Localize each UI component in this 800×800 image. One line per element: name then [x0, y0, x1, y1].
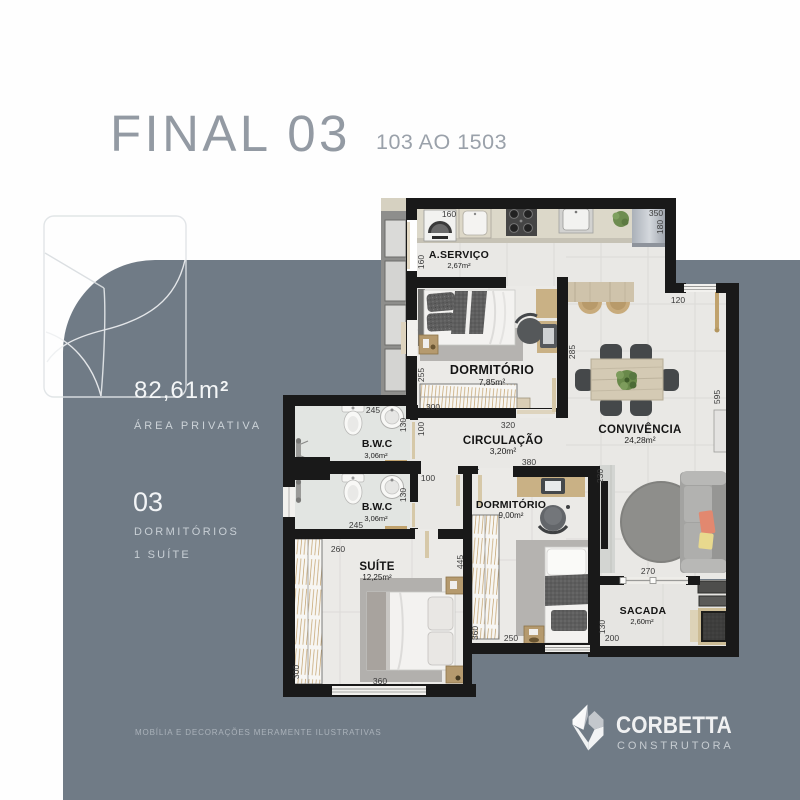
svg-text:255: 255 — [416, 368, 426, 382]
svg-text:180: 180 — [655, 220, 665, 234]
svg-text:245: 245 — [366, 405, 380, 415]
svg-text:100: 100 — [421, 473, 435, 483]
svg-text:130: 130 — [398, 488, 408, 502]
svg-text:270: 270 — [641, 566, 655, 576]
svg-text:230: 230 — [595, 469, 605, 483]
svg-text:130: 130 — [597, 620, 607, 634]
svg-text:160: 160 — [416, 255, 426, 269]
svg-text:445: 445 — [455, 555, 465, 569]
svg-text:160: 160 — [442, 209, 456, 219]
svg-text:A.SERVIÇO: A.SERVIÇO — [429, 249, 489, 261]
svg-text:12,25m²: 12,25m² — [362, 573, 392, 582]
svg-text:B.W.C: B.W.C — [362, 438, 393, 450]
svg-text:350: 350 — [649, 208, 663, 218]
svg-text:2,60m²: 2,60m² — [630, 617, 654, 626]
svg-text:SUÍTE: SUÍTE — [359, 560, 394, 573]
svg-text:SACADA: SACADA — [620, 605, 667, 617]
svg-text:B.W.C: B.W.C — [362, 501, 393, 513]
svg-text:24,28m²: 24,28m² — [624, 435, 655, 445]
svg-text:DORMITÓRIO: DORMITÓRIO — [476, 498, 546, 511]
svg-text:3,20m²: 3,20m² — [490, 446, 517, 456]
svg-text:200: 200 — [605, 633, 619, 643]
svg-text:130: 130 — [398, 418, 408, 432]
svg-text:360: 360 — [470, 626, 480, 640]
svg-text:DORMITÓRIO: DORMITÓRIO — [450, 362, 534, 377]
svg-text:320: 320 — [501, 420, 515, 430]
svg-text:2,67m²: 2,67m² — [447, 261, 471, 270]
svg-text:360: 360 — [373, 676, 387, 686]
svg-text:250: 250 — [504, 633, 518, 643]
svg-text:285: 285 — [567, 345, 577, 359]
svg-text:7,85m²: 7,85m² — [479, 377, 506, 387]
svg-text:300: 300 — [291, 665, 301, 679]
svg-text:260: 260 — [331, 544, 345, 554]
svg-text:3,06m²: 3,06m² — [364, 451, 388, 460]
svg-text:3,06m²: 3,06m² — [364, 514, 388, 523]
svg-text:380: 380 — [522, 457, 536, 467]
svg-text:100: 100 — [416, 422, 426, 436]
svg-text:300: 300 — [426, 402, 440, 412]
svg-text:245: 245 — [349, 520, 363, 530]
svg-text:120: 120 — [671, 295, 685, 305]
svg-text:595: 595 — [712, 390, 722, 404]
svg-text:9,00m²: 9,00m² — [499, 511, 524, 520]
